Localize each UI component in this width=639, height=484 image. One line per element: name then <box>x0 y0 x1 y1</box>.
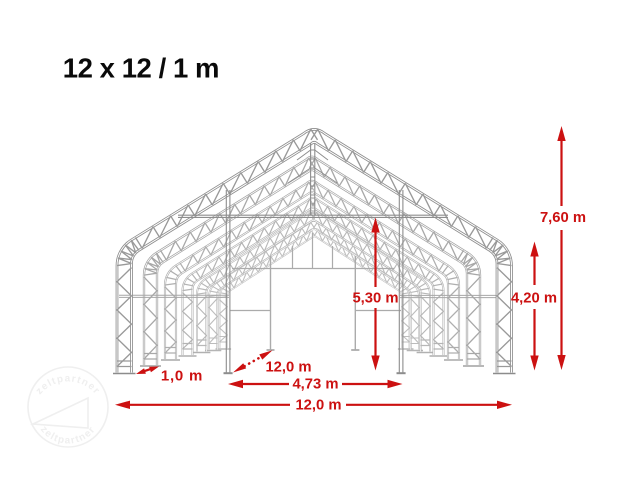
svg-text:5,30 m: 5,30 m <box>352 290 398 306</box>
svg-text:1,0 m: 1,0 m <box>161 368 203 385</box>
svg-text:12,0 m: 12,0 m <box>265 360 311 376</box>
svg-text:4,20 m: 4,20 m <box>511 290 557 306</box>
svg-text:12,0 m: 12,0 m <box>295 397 341 413</box>
svg-text:4,73 m: 4,73 m <box>292 377 338 393</box>
svg-text:7,60 m: 7,60 m <box>540 210 586 226</box>
svg-text:12 x 12 / 1 m: 12 x 12 / 1 m <box>63 53 219 84</box>
